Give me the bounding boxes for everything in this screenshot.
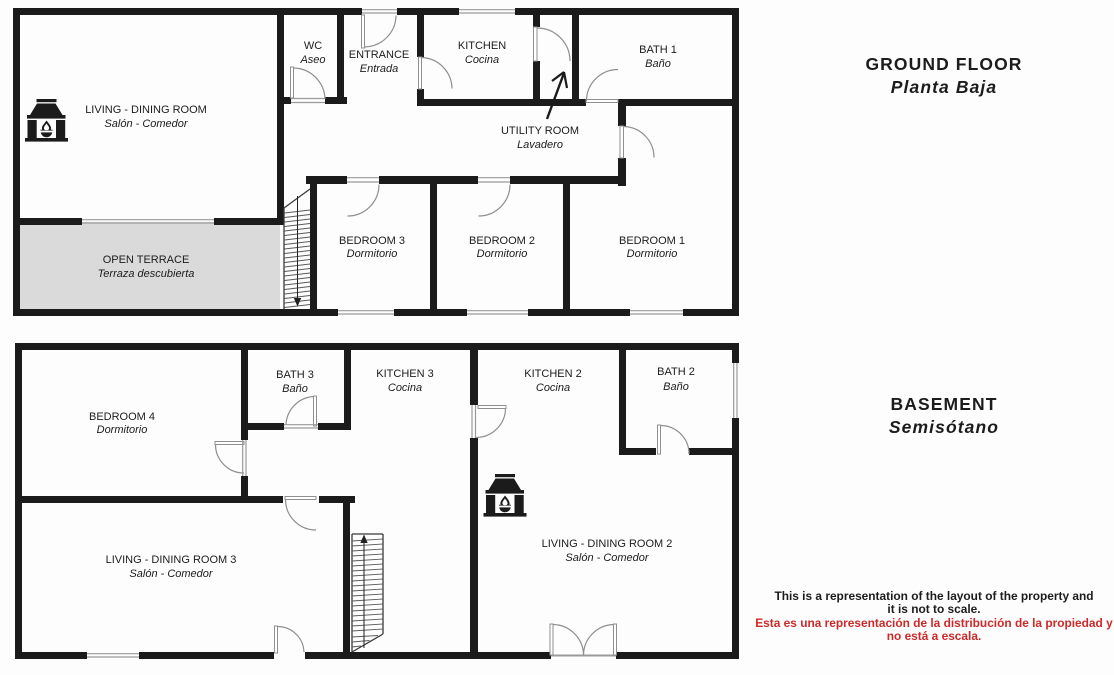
- svg-text:Baño: Baño: [282, 383, 308, 395]
- svg-text:LIVING - DINING ROOM 3: LIVING - DINING ROOM 3: [106, 554, 237, 566]
- svg-text:no está a escala.: no está a escala.: [887, 629, 982, 643]
- svg-text:Cocina: Cocina: [465, 54, 499, 66]
- svg-text:Lavadero: Lavadero: [517, 139, 563, 151]
- svg-text:Dormitorio: Dormitorio: [477, 248, 528, 260]
- svg-text:Dormitorio: Dormitorio: [627, 248, 678, 260]
- svg-text:BEDROOM 2: BEDROOM 2: [469, 235, 535, 247]
- svg-text:BEDROOM 1: BEDROOM 1: [619, 235, 685, 247]
- svg-text:LIVING - DINING ROOM 2: LIVING - DINING ROOM 2: [542, 538, 673, 550]
- svg-text:Cocina: Cocina: [536, 382, 570, 394]
- svg-text:Salón - Comedor: Salón - Comedor: [129, 568, 213, 580]
- svg-text:WC: WC: [304, 40, 322, 52]
- svg-text:This is a representation of th: This is a representation of the layout o…: [774, 589, 1093, 603]
- svg-text:Cocina: Cocina: [388, 382, 422, 394]
- svg-text:GROUND FLOOR: GROUND FLOOR: [865, 54, 1022, 74]
- svg-text:Baño: Baño: [663, 381, 689, 393]
- svg-text:Planta Baja: Planta Baja: [891, 77, 997, 97]
- svg-text:Salón - Comedor: Salón - Comedor: [565, 552, 649, 564]
- svg-text:Terraza descubierta: Terraza descubierta: [98, 268, 195, 280]
- svg-text:ENTRANCE: ENTRANCE: [349, 49, 410, 61]
- svg-text:BATH 3: BATH 3: [276, 369, 314, 381]
- svg-text:Esta es una representación de: Esta es una representación de la distrib…: [755, 616, 1113, 630]
- svg-text:BATH 2: BATH 2: [657, 366, 695, 378]
- svg-text:Dormitorio: Dormitorio: [97, 424, 148, 436]
- svg-text:BASEMENT: BASEMENT: [891, 394, 998, 414]
- svg-text:KITCHEN 2: KITCHEN 2: [524, 368, 581, 380]
- svg-text:OPEN TERRACE: OPEN TERRACE: [103, 254, 190, 266]
- svg-text:KITCHEN: KITCHEN: [458, 40, 506, 52]
- svg-text:Salón - Comedor: Salón - Comedor: [104, 118, 188, 130]
- svg-text:Baño: Baño: [645, 58, 671, 70]
- svg-text:BEDROOM 3: BEDROOM 3: [339, 235, 405, 247]
- svg-text:Aseo: Aseo: [299, 54, 325, 66]
- svg-text:it is not to scale.: it is not to scale.: [887, 602, 980, 616]
- svg-text:UTILITY ROOM: UTILITY ROOM: [501, 125, 579, 137]
- svg-text:Entrada: Entrada: [360, 63, 399, 75]
- svg-text:BATH 1: BATH 1: [639, 44, 677, 56]
- svg-text:LIVING - DINING ROOM: LIVING - DINING ROOM: [85, 104, 207, 116]
- svg-text:KITCHEN 3: KITCHEN 3: [376, 368, 433, 380]
- svg-text:Semisótano: Semisótano: [889, 417, 999, 437]
- svg-text:BEDROOM 4: BEDROOM 4: [89, 411, 155, 423]
- svg-text:Dormitorio: Dormitorio: [347, 248, 398, 260]
